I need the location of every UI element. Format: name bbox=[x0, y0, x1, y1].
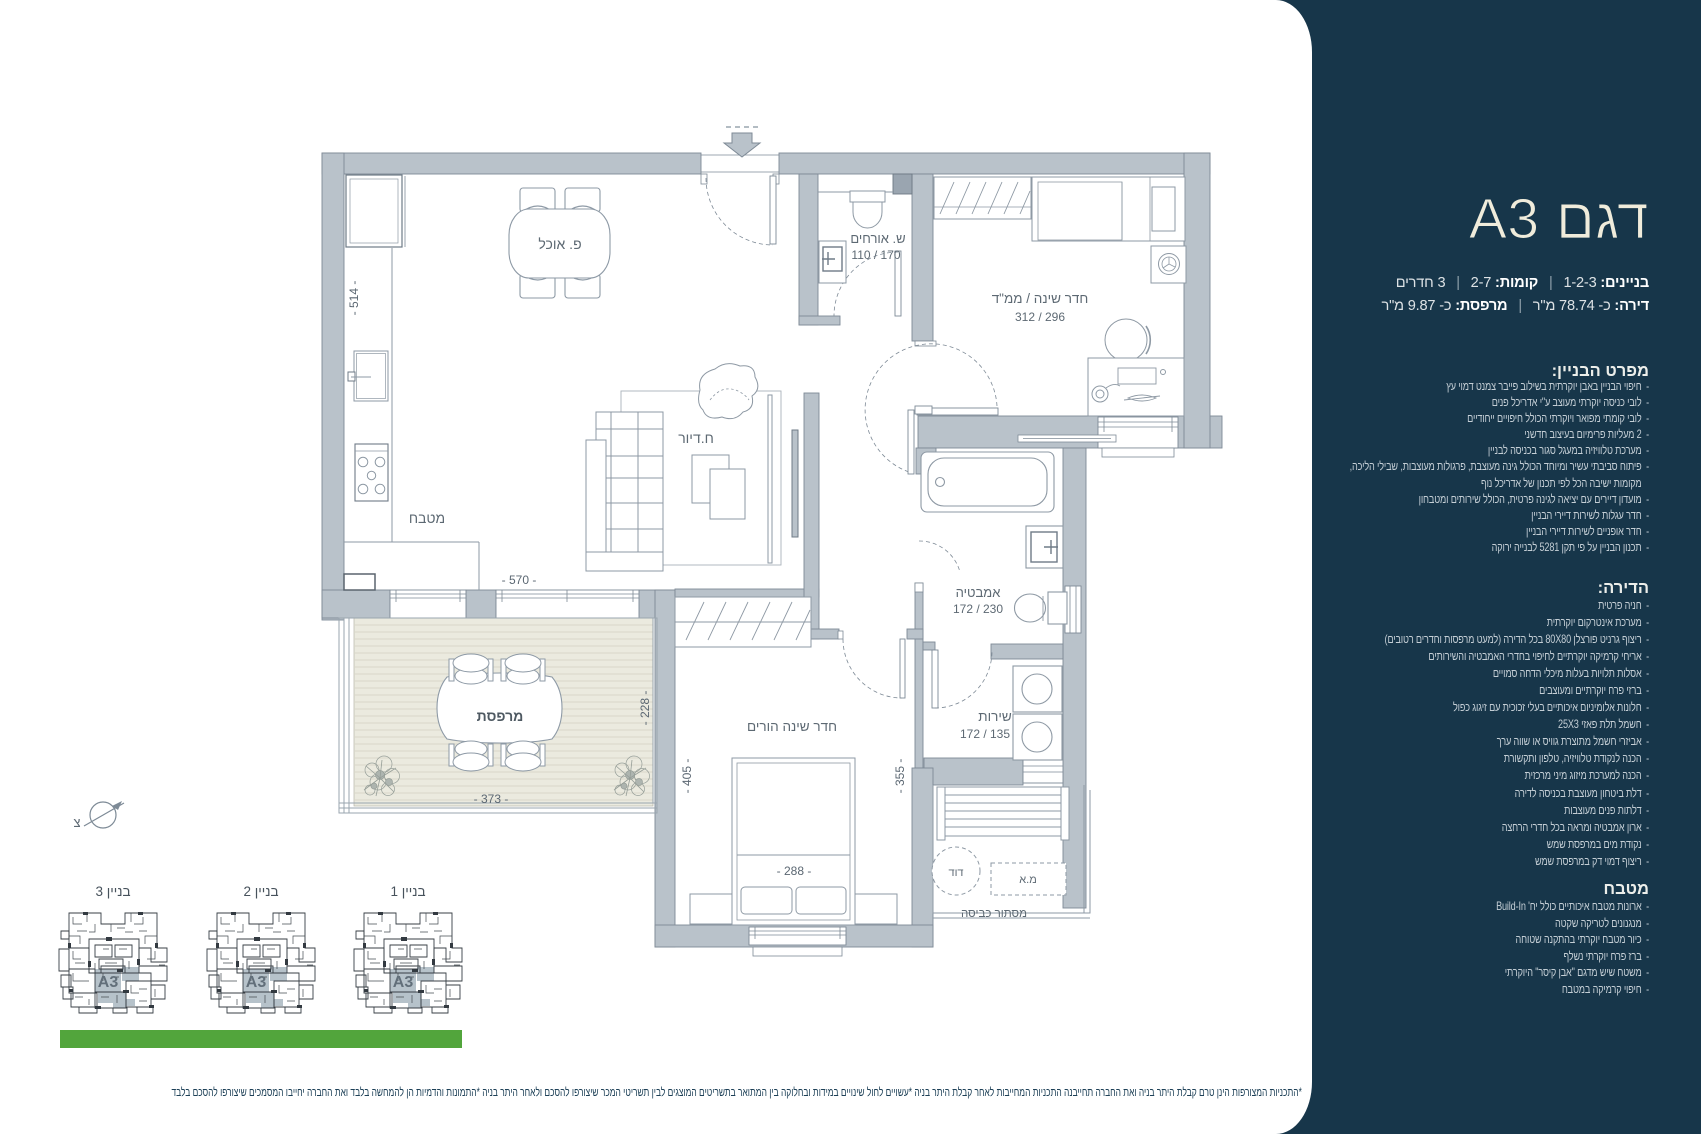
svg-text:- 570 -: - 570 - bbox=[502, 573, 537, 587]
svg-text:דוד: דוד bbox=[948, 867, 963, 879]
svg-text:מרפסת: מרפסת bbox=[477, 708, 524, 724]
svg-text:חדר שינה הורים: חדר שינה הורים bbox=[747, 719, 837, 734]
svg-text:חדר שינה / ממ"ד: חדר שינה / ממ"ד bbox=[992, 291, 1089, 306]
svg-text:שירות: שירות bbox=[978, 709, 1012, 724]
svg-text:172 / 135: 172 / 135 bbox=[960, 727, 1010, 741]
svg-text:ש. אורחים: ש. אורחים bbox=[850, 231, 905, 246]
svg-text:מטבח: מטבח bbox=[409, 510, 445, 526]
svg-text:בניין 1: בניין 1 bbox=[390, 884, 425, 899]
svg-text:מסתור כביסה: מסתור כביסה bbox=[961, 908, 1027, 920]
svg-text:אמבטיה: אמבטיה bbox=[956, 585, 1001, 600]
svg-text:פ. אוכל: פ. אוכל bbox=[538, 236, 581, 252]
svg-text:312 / 296: 312 / 296 bbox=[1015, 310, 1065, 324]
svg-text:צ: צ bbox=[73, 815, 80, 830]
svg-text:- 228 -: - 228 - bbox=[638, 691, 652, 726]
svg-text:- 514 -: - 514 - bbox=[347, 281, 361, 316]
svg-text:- 373 -: - 373 - bbox=[474, 792, 509, 806]
svg-text:110 / 170: 110 / 170 bbox=[851, 248, 900, 262]
svg-text:מ.א: מ.א bbox=[1019, 874, 1037, 886]
svg-text:- 355 -: - 355 - bbox=[893, 759, 907, 794]
svg-text:- 405 -: - 405 - bbox=[680, 759, 694, 794]
svg-text:בניין 3: בניין 3 bbox=[95, 884, 130, 899]
svg-text:- 288 -: - 288 - bbox=[777, 864, 812, 878]
svg-text:ח.דיור: ח.דיור bbox=[678, 430, 714, 446]
svg-text:בניין 2: בניין 2 bbox=[243, 884, 278, 899]
svg-text:172 / 230: 172 / 230 bbox=[953, 602, 1003, 616]
